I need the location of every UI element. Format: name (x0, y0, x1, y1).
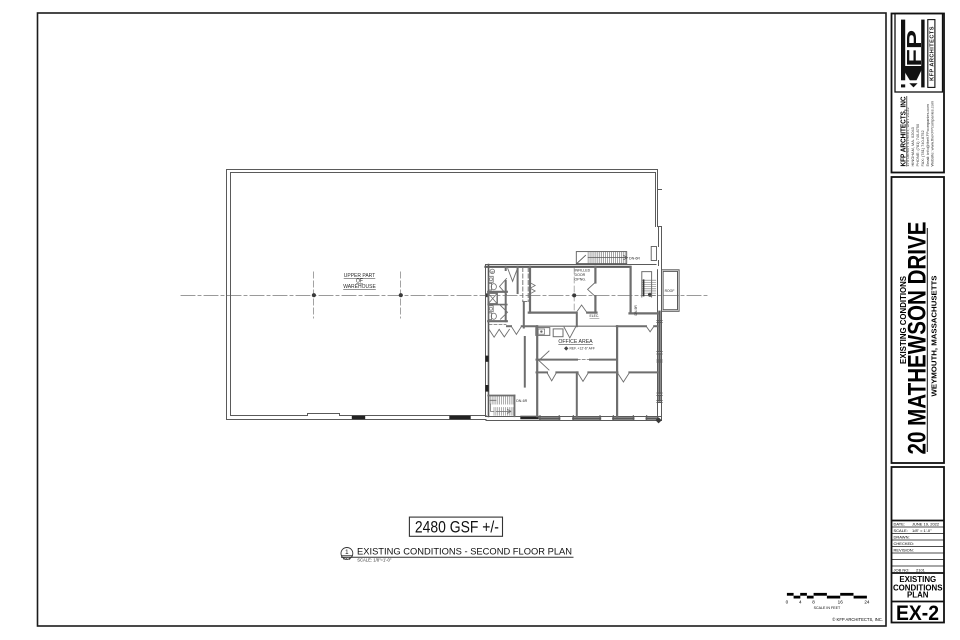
svg-text:WEYMOUTH, MASSACHUSETTS: WEYMOUTH, MASSACHUSETTS (930, 275, 939, 396)
svg-text:OFFICE AREA: OFFICE AREA (558, 339, 593, 345)
svg-text:DN-6R: DN-6R (516, 399, 527, 403)
svg-text:1: 1 (345, 549, 349, 556)
svg-text:ROOF: ROOF (665, 289, 675, 293)
svg-text:Website: www.theKFPcompanies.: Website: www.theKFPcompanies.com (930, 101, 935, 167)
svg-text:24: 24 (864, 599, 870, 604)
svg-text:JOB NO:: JOB NO: (894, 567, 910, 572)
svg-text:16: 16 (838, 599, 844, 604)
svg-text:SCALE:: SCALE: (894, 528, 908, 533)
svg-text:KFP ARCHITECTS: KFP ARCHITECTS (930, 26, 936, 81)
svg-text:2101: 2101 (916, 567, 926, 572)
svg-text:REVISION:: REVISION: (894, 548, 914, 553)
svg-text:SCALE: 1/8"=1'-0": SCALE: 1/8"=1'-0" (357, 558, 392, 563)
svg-text:WAREHOUSE: WAREHOUSE (343, 284, 376, 290)
svg-text:EXISTING CONDITIONS - SECOND F: EXISTING CONDITIONS - SECOND FLOOR PLAN (357, 547, 572, 557)
svg-text:DATE:: DATE: (894, 522, 905, 527)
svg-text:SCALE IN FEET: SCALE IN FEET (814, 606, 841, 610)
svg-text:JUNE 19, 2022: JUNE 19, 2022 (912, 522, 940, 527)
svg-text:PLAN: PLAN (907, 590, 929, 599)
svg-text:DRAWN:: DRAWN: (894, 535, 910, 540)
svg-text:ELEC.: ELEC. (590, 314, 600, 318)
svg-text:DN-6R: DN-6R (629, 257, 640, 261)
svg-text:EX-2: EX-2 (896, 601, 939, 625)
svg-text:2480 GSF +/-: 2480 GSF +/- (415, 518, 499, 536)
svg-text:© KFP ARCHITECTS, INC.: © KFP ARCHITECTS, INC. (832, 617, 883, 622)
svg-text:OPNG.: OPNG. (575, 278, 587, 282)
svg-text:4: 4 (799, 599, 802, 604)
svg-text:REF. +12'-6" AFF: REF. +12'-6" AFF (570, 346, 595, 350)
svg-text:FP: FP (904, 30, 926, 67)
svg-text:DN-9R: DN-9R (634, 305, 638, 316)
svg-text:8: 8 (812, 599, 815, 604)
svg-text:DOOR: DOOR (575, 273, 586, 277)
svg-text:CHECKED:: CHECKED: (894, 541, 915, 546)
svg-text:1/8" = 1'-0": 1/8" = 1'-0" (912, 528, 932, 533)
svg-text:0: 0 (786, 599, 789, 604)
svg-text:INFILLED: INFILLED (575, 269, 591, 273)
